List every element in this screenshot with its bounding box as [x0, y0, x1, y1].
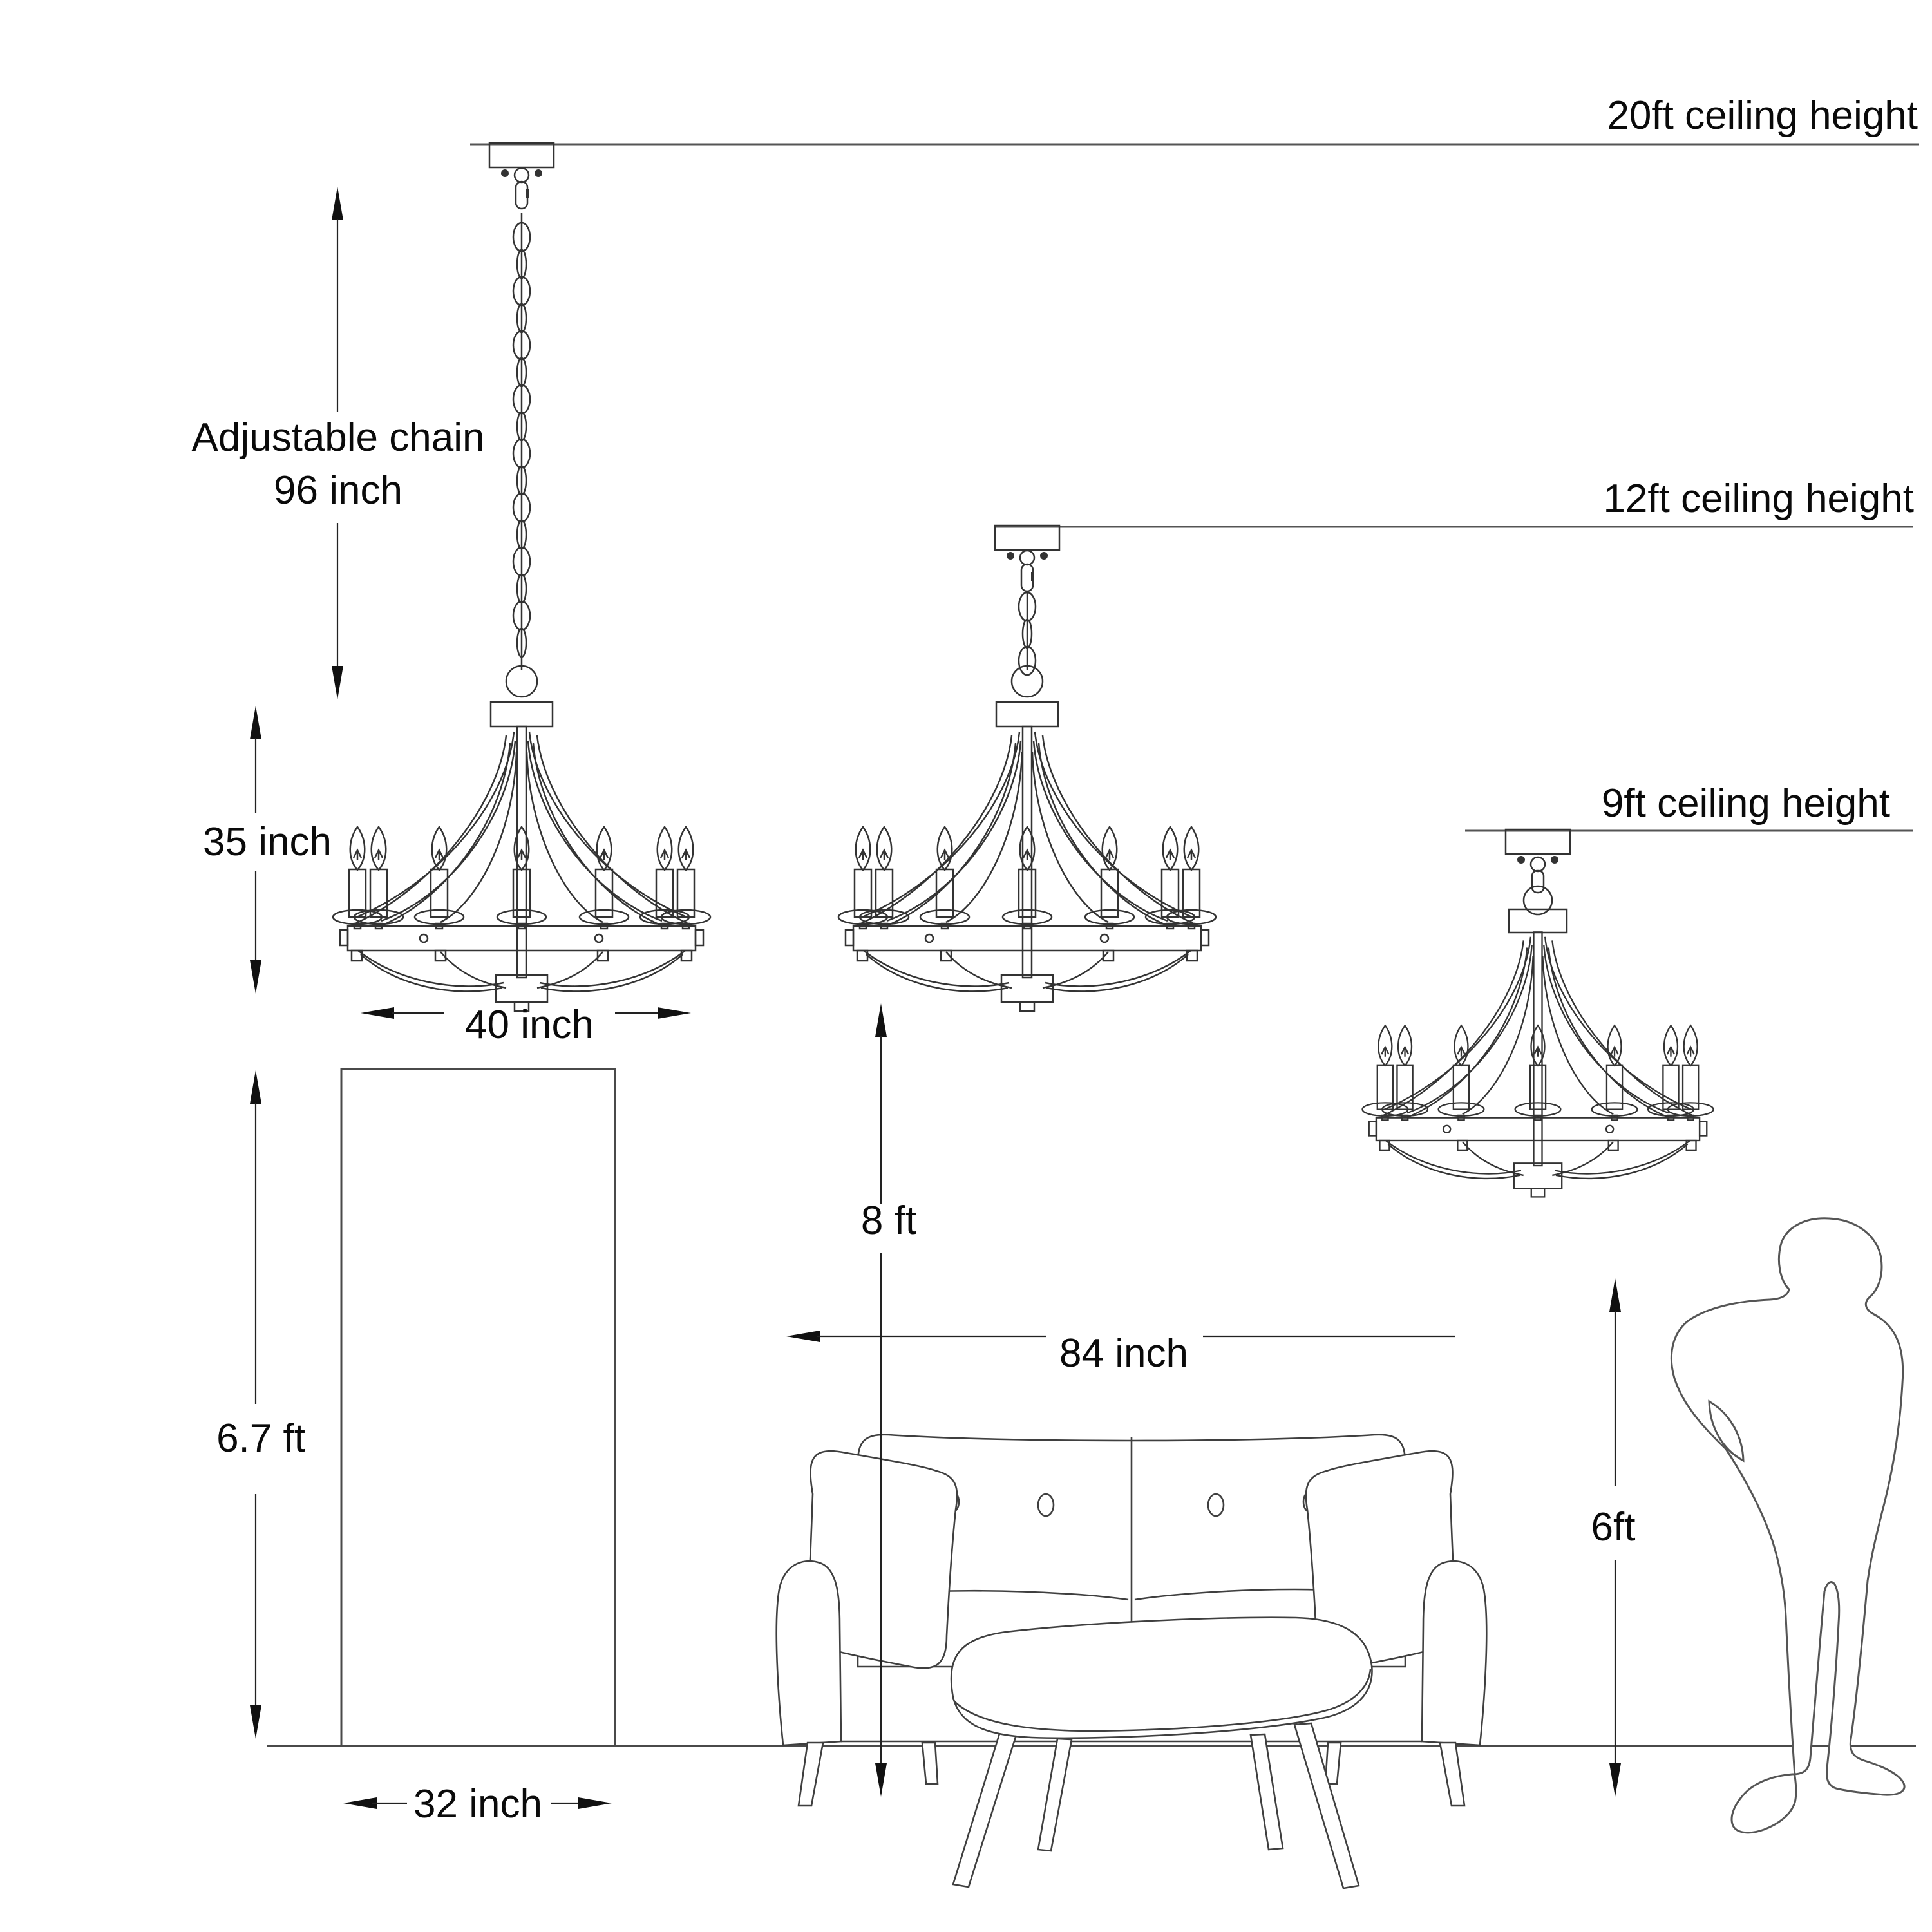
person-outline: [1671, 1218, 1904, 1833]
dim-clearance-8ft: 8 ft: [861, 1003, 916, 1797]
sofa-illustration: [777, 1435, 1487, 1806]
dim-fixture-width-40in: 40 inch: [361, 1003, 691, 1047]
coffee-table-illustration: [951, 1618, 1372, 1888]
chandelier-hub: [996, 702, 1058, 726]
ceiling-label-20ft: 20ft ceiling height: [1607, 93, 1918, 138]
dim-door-height-6-7ft: 6.7 ft: [216, 1070, 305, 1739]
dim-adjustable-chain: Adjustable chain 96 inch: [192, 187, 485, 699]
dim-label-person-height: 6ft: [1591, 1505, 1636, 1549]
sofa-leg: [922, 1743, 938, 1784]
sofa-arm-left: [777, 1561, 841, 1745]
sofa-leg: [799, 1743, 823, 1806]
chandelier-12ft-illustration: [838, 526, 1216, 1011]
table-leg: [1251, 1734, 1283, 1850]
table-leg: [1038, 1739, 1072, 1851]
chandelier-hub: [491, 702, 553, 726]
dim-label-sofa-width: 84 inch: [1059, 1331, 1188, 1376]
person-silhouette: [1671, 1218, 1904, 1833]
dim-sofa-width-84in: 84 inch: [786, 1331, 1455, 1376]
chandelier-hub: [1509, 909, 1567, 933]
diagram-canvas: 20ft ceiling height 12ft ceiling height …: [0, 0, 1932, 1932]
dim-label-fixture-height: 35 inch: [203, 820, 332, 864]
dim-label-fixture-width: 40 inch: [465, 1003, 594, 1047]
dim-label-clearance: 8 ft: [861, 1198, 916, 1243]
size-guide-diagram: 20ft ceiling height 12ft ceiling height …: [0, 0, 1932, 1932]
dim-label-chain-length: 96 inch: [274, 468, 402, 513]
dim-door-width-32in: 32 inch: [343, 1782, 612, 1826]
table-leg: [953, 1734, 1016, 1887]
chandelier-9ft-illustration: [1363, 829, 1714, 1197]
dim-label-door-height: 6.7 ft: [216, 1416, 305, 1461]
sofa-arm-right: [1422, 1561, 1486, 1745]
sofa-leg: [1440, 1743, 1464, 1806]
dim-fixture-height-35in: 35 inch: [203, 706, 332, 994]
door-outline: [341, 1069, 615, 1746]
chandelier-20ft-illustration: [333, 143, 710, 1011]
ceiling-label-9ft: 9ft ceiling height: [1602, 781, 1890, 826]
table-leg: [1294, 1723, 1359, 1888]
dim-label-door-width: 32 inch: [413, 1782, 542, 1826]
table-top: [951, 1618, 1372, 1738]
dim-label-adjustable-chain: Adjustable chain: [192, 415, 485, 460]
ceiling-label-12ft: 12ft ceiling height: [1603, 477, 1914, 521]
dim-person-height-6ft: 6ft: [1591, 1278, 1636, 1797]
